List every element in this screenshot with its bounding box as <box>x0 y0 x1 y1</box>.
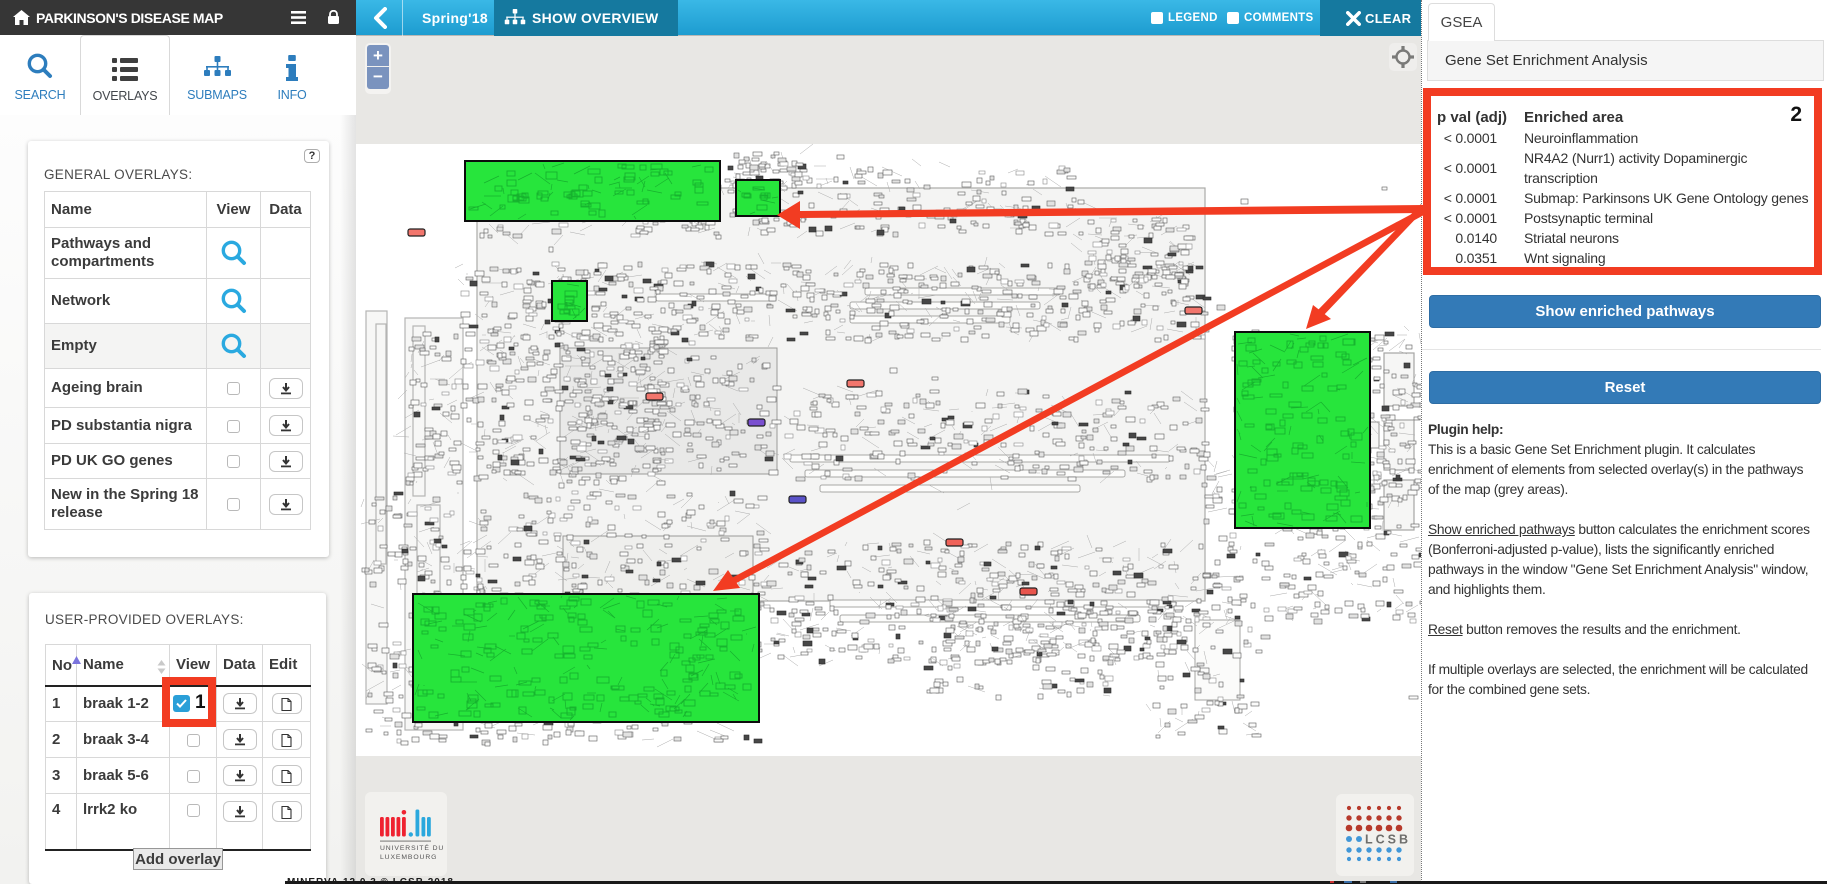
svg-text:UNIVERSITÉ DU: UNIVERSITÉ DU <box>380 843 444 852</box>
svg-text:LUXEMBOURG: LUXEMBOURG <box>380 854 437 861</box>
svg-text:LCSB: LCSB <box>1365 833 1411 847</box>
